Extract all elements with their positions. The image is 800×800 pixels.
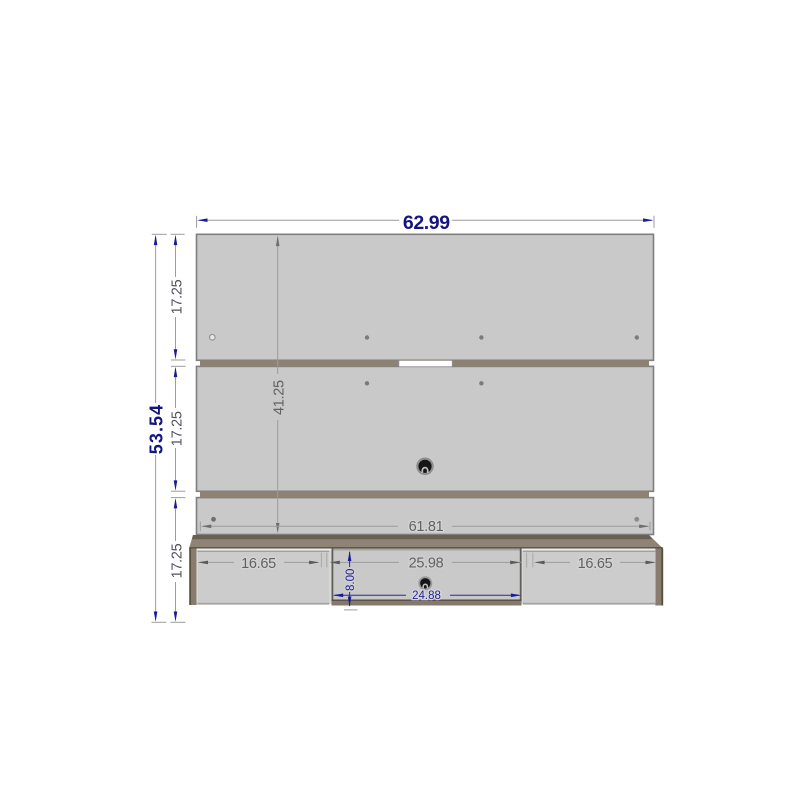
svg-text:41.25: 41.25 <box>272 380 288 415</box>
svg-text:61.81: 61.81 <box>409 519 444 535</box>
svg-text:17.25: 17.25 <box>170 411 186 446</box>
svg-text:16.65: 16.65 <box>578 556 613 572</box>
svg-text:16.65: 16.65 <box>241 556 276 572</box>
svg-text:8.00: 8.00 <box>345 569 357 591</box>
svg-text:17.25: 17.25 <box>170 543 186 578</box>
svg-text:17.25: 17.25 <box>170 279 186 314</box>
svg-text:25.98: 25.98 <box>409 556 444 572</box>
svg-text:24.88: 24.88 <box>412 590 441 602</box>
svg-text:53.54: 53.54 <box>147 404 167 455</box>
svg-text:62.99: 62.99 <box>403 212 450 234</box>
